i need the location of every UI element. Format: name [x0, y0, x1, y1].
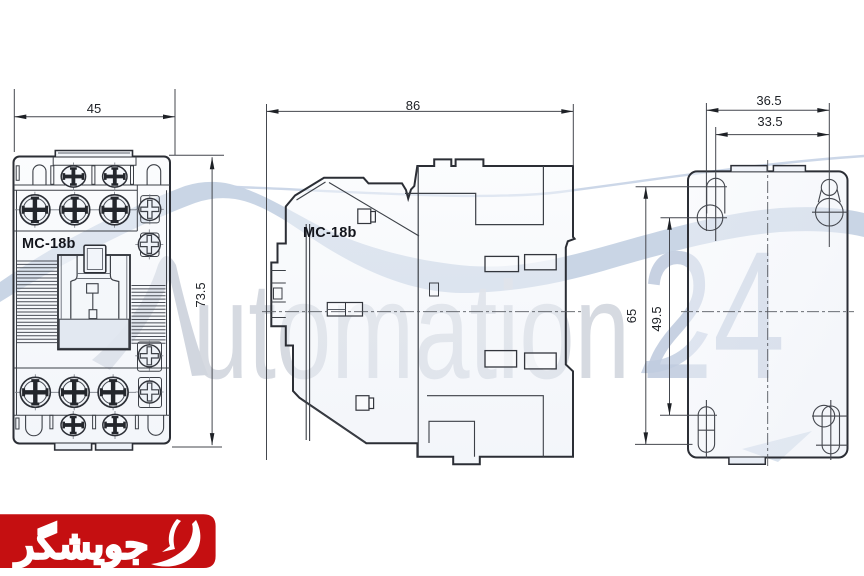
svg-text:73.5: 73.5 [193, 282, 208, 307]
svg-text:65: 65 [624, 309, 639, 323]
svg-text:49.5: 49.5 [649, 306, 664, 331]
svg-text:MC-18b: MC-18b [22, 236, 76, 252]
svg-text:45: 45 [87, 101, 101, 116]
svg-text:86: 86 [406, 98, 420, 113]
svg-text:MC-18b: MC-18b [303, 225, 357, 241]
svg-text:36.5: 36.5 [756, 93, 781, 108]
svg-text:33.5: 33.5 [757, 114, 782, 129]
svg-text:جویشگر: جویشگر [13, 522, 149, 569]
